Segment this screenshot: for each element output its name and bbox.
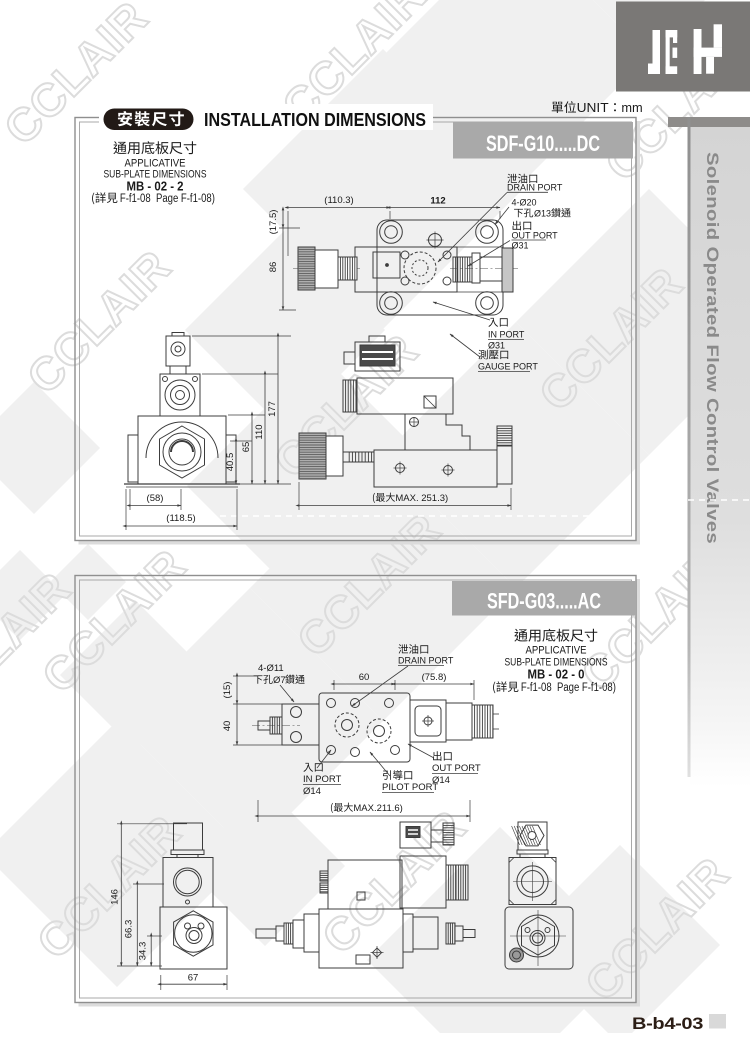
svg-text:MB - 02 - 0: MB - 02 - 0: [528, 667, 585, 682]
svg-text:F-f1-08 Page F-f1-08): F-f1-08 Page F-f1-08): [120, 193, 215, 205]
svg-text:(118.5): (118.5): [166, 513, 195, 524]
svg-text:(17.5): (17.5): [268, 210, 279, 235]
svg-text:(110.3): (110.3): [324, 195, 353, 206]
svg-text:SDF-G10.....DC: SDF-G10.....DC: [486, 131, 600, 156]
svg-text:Ø31: Ø31: [512, 241, 529, 251]
svg-text:Ø7: Ø7: [273, 675, 286, 686]
svg-text:66.3: 66.3: [124, 920, 135, 939]
svg-text:OUT PORT: OUT PORT: [432, 763, 481, 774]
svg-text:60: 60: [359, 672, 370, 683]
svg-text:(75.8): (75.8): [422, 672, 447, 683]
svg-text:4-Ø20: 4-Ø20: [512, 198, 537, 208]
svg-text:34.3: 34.3: [138, 942, 149, 961]
svg-text:Ø14: Ø14: [303, 786, 321, 797]
svg-text:DRAIN PORT: DRAIN PORT: [507, 183, 563, 193]
svg-text:IN PORT: IN PORT: [488, 330, 525, 340]
svg-text:PILOT PORT: PILOT PORT: [382, 782, 438, 793]
svg-text:OUT PORT: OUT PORT: [512, 231, 559, 241]
svg-text:INSTALLATION DIMENSIONS: INSTALLATION DIMENSIONS: [204, 109, 426, 130]
svg-text:MB - 02 - 2: MB - 02 - 2: [127, 179, 184, 194]
svg-text:MAX.211.6): MAX.211.6): [353, 803, 402, 814]
svg-text:40.5: 40.5: [225, 453, 236, 472]
svg-text:4-Ø11: 4-Ø11: [258, 663, 284, 674]
svg-text:B-b4-03: B-b4-03: [632, 1014, 703, 1033]
svg-text:UNIT: UNIT: [577, 100, 609, 115]
svg-text:mm: mm: [621, 100, 642, 115]
svg-text:IN PORT: IN PORT: [303, 774, 342, 785]
svg-text:CCLAIR: CCLAIR: [0, 0, 158, 155]
svg-text:(58): (58): [147, 493, 164, 504]
svg-text:CCLAIR: CCLAIR: [17, 240, 181, 404]
svg-text:GAUGE PORT: GAUGE PORT: [478, 362, 538, 372]
svg-text:146: 146: [110, 889, 121, 905]
svg-text:F-f1-08 Page F-f1-08): F-f1-08 Page F-f1-08): [521, 682, 616, 694]
svg-text:40: 40: [222, 721, 233, 732]
svg-text:Solenoid Operated Flow Control: Solenoid Operated Flow Control Valves: [703, 152, 722, 544]
svg-text:SFD-G03.....AC: SFD-G03.....AC: [487, 589, 601, 614]
svg-text:Ø13: Ø13: [534, 209, 551, 219]
svg-text:MAX. 251.3): MAX. 251.3): [395, 493, 448, 504]
svg-text:67: 67: [188, 973, 199, 984]
svg-text:86: 86: [268, 262, 279, 273]
svg-text:DRAIN PORT: DRAIN PORT: [398, 656, 454, 666]
svg-text:APPLICATIVE: APPLICATIVE: [526, 645, 587, 657]
svg-text:65: 65: [241, 442, 252, 453]
svg-text:Ø31: Ø31: [488, 341, 505, 351]
svg-text:110: 110: [254, 424, 265, 439]
svg-text:(15): (15): [222, 682, 233, 699]
svg-text:Ø14: Ø14: [432, 775, 450, 786]
svg-text:112: 112: [430, 196, 445, 207]
svg-text:177: 177: [267, 401, 278, 417]
